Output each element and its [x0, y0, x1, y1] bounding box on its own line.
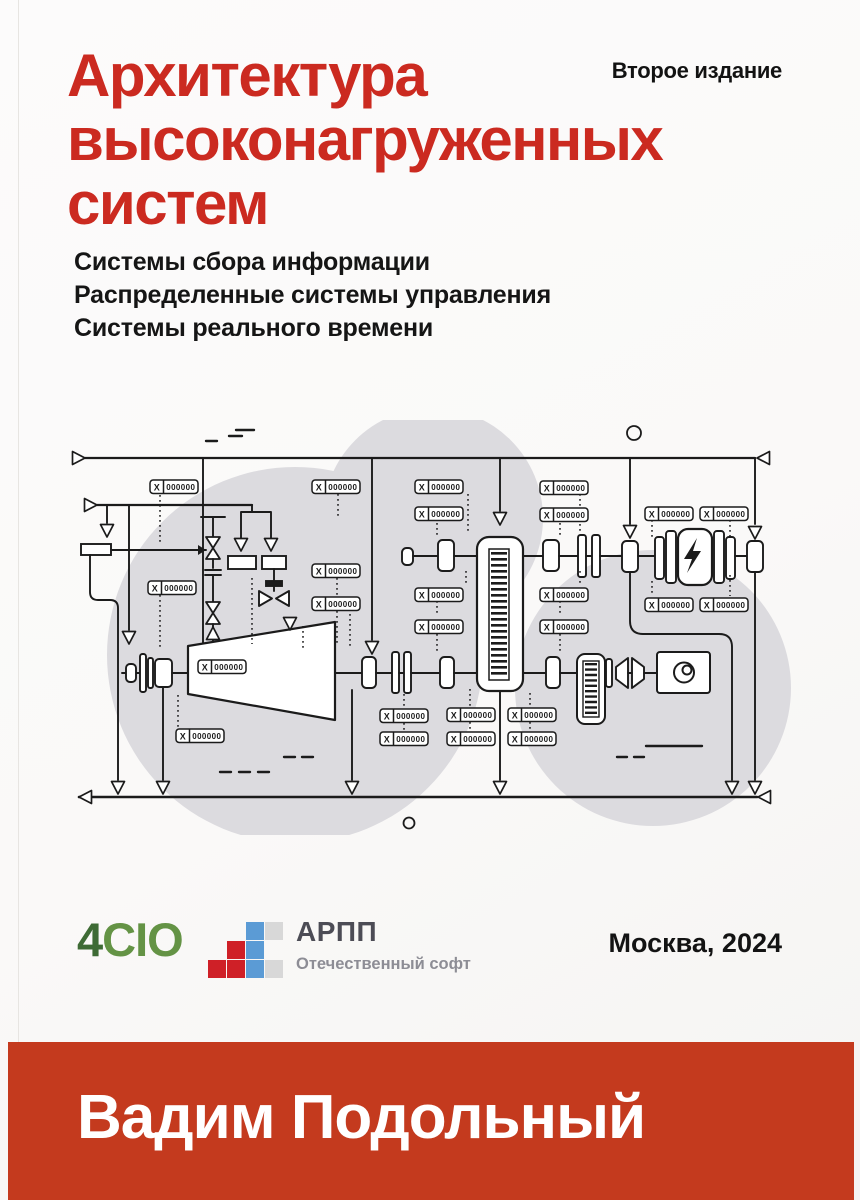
pump [657, 652, 710, 693]
arpp-block-blue [246, 960, 264, 978]
city-year: Москва, 2024 [609, 928, 782, 959]
arpp-block-blue [246, 941, 264, 959]
topics-list: Системы сбора информации Распределенные … [74, 246, 551, 345]
heat-exchanger [477, 537, 523, 691]
logo-4cio-letters: CIO [102, 913, 183, 966]
book-cover: { "edition_label": "Второе издание", "ti… [0, 0, 860, 1200]
author-name: Вадим Подольный [77, 1082, 645, 1153]
arpp-tagline: Отечественный софт [296, 955, 471, 974]
arpp-block-blue [246, 922, 264, 940]
page-edge-line [18, 0, 19, 1042]
book-title: Архитектура высоконагруженных систем [67, 44, 662, 236]
schematic-diagram: X 000000 [60, 420, 800, 835]
arpp-block-red [227, 960, 245, 978]
arpp-block-red [208, 960, 226, 978]
logo-4cio-digit: 4 [77, 913, 102, 966]
arpp-block-red [227, 941, 245, 959]
logo-4cio: 4CIO [77, 912, 183, 967]
author-band: Вадим Подольный [8, 1042, 854, 1200]
generator [655, 529, 763, 585]
arpp-block-gray [265, 960, 283, 978]
arpp-name: АРПП [296, 916, 377, 948]
arpp-block-gray [265, 922, 283, 940]
